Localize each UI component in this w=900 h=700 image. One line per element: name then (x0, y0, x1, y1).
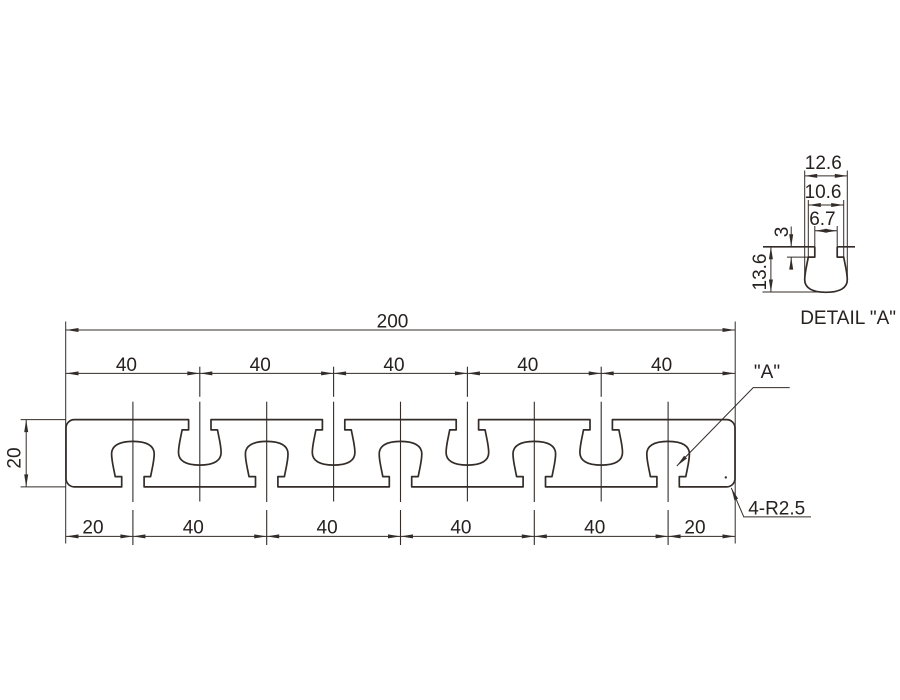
svg-text:4-R2.5: 4-R2.5 (748, 499, 805, 520)
svg-text:3: 3 (772, 227, 793, 238)
svg-text:40: 40 (584, 517, 605, 538)
svg-text:DETAIL "A": DETAIL "A" (800, 308, 896, 329)
svg-text:"A": "A" (754, 362, 780, 383)
svg-text:20: 20 (5, 447, 26, 468)
svg-text:20: 20 (82, 517, 103, 538)
svg-text:12.6: 12.6 (805, 153, 842, 174)
svg-text:40: 40 (517, 355, 538, 376)
svg-text:40: 40 (651, 355, 672, 376)
svg-text:40: 40 (116, 355, 137, 376)
svg-text:40: 40 (450, 517, 471, 538)
svg-text:40: 40 (183, 517, 204, 538)
svg-text:40: 40 (317, 517, 338, 538)
svg-text:20: 20 (684, 517, 705, 538)
svg-text:10.6: 10.6 (805, 182, 842, 203)
svg-text:6.7: 6.7 (809, 209, 835, 230)
svg-text:40: 40 (383, 355, 404, 376)
svg-text:200: 200 (377, 311, 409, 332)
svg-text:40: 40 (250, 355, 271, 376)
svg-text:13.6: 13.6 (750, 254, 771, 291)
